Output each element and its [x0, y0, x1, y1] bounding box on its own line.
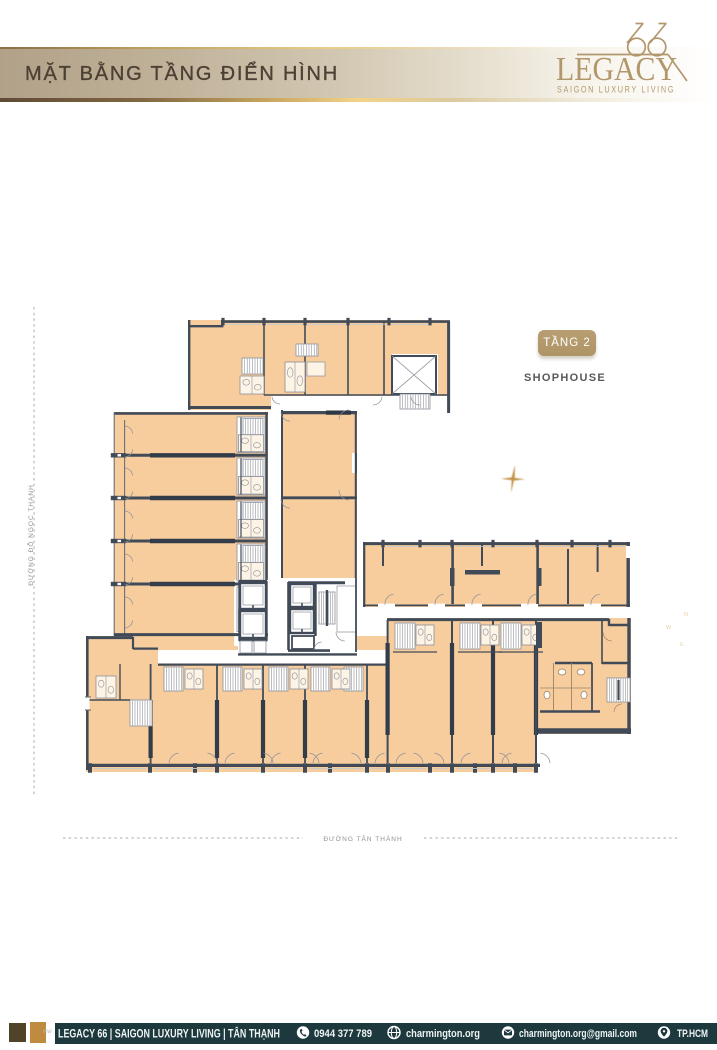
- svg-text:TP.HCM: TP.HCM: [677, 1028, 708, 1040]
- svg-text:LEGACY: LEGACY: [556, 51, 677, 88]
- svg-text:0944 377 789: 0944 377 789: [314, 1028, 372, 1040]
- svg-text:ĐƯỜNG TÂN THÀNH: ĐƯỜNG TÂN THÀNH: [323, 834, 402, 843]
- svg-text:SAIGON LUXURY LIVING: SAIGON LUXURY LIVING: [557, 85, 675, 95]
- svg-text:LEGACY 66 | SAIGON LUXURY LIVI: LEGACY 66 | SAIGON LUXURY LIVING | TÂN T…: [58, 1026, 280, 1041]
- svg-text:N: N: [684, 612, 688, 618]
- svg-text:E: E: [680, 642, 684, 648]
- svg-text:charmington.org: charmington.org: [406, 1028, 480, 1040]
- svg-text:charmington.org@gmail.com: charmington.org@gmail.com: [519, 1028, 637, 1040]
- svg-text:W: W: [666, 625, 672, 631]
- svg-text:ĐƯỜNG ĐỖ NGỌC THẠNH: ĐƯỜNG ĐỖ NGỌC THẠNH: [26, 484, 35, 586]
